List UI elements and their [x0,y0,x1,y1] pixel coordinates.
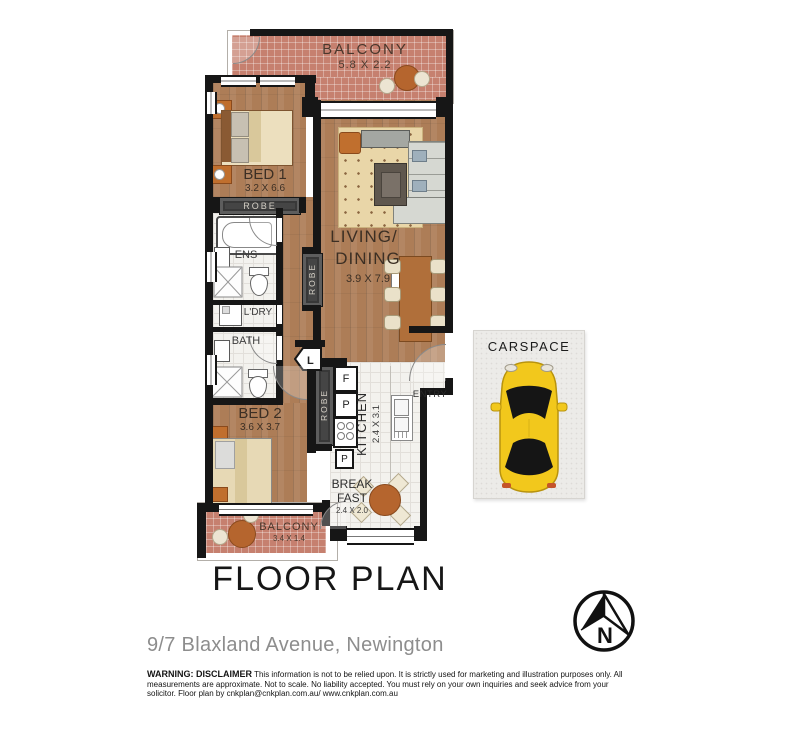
burner [346,432,354,440]
breakfast-label-2: FAST [330,491,374,505]
armchair-icon [339,132,361,154]
compass-n-label: N [597,623,613,648]
door-opening [277,218,282,242]
pantry-label: P [341,454,348,465]
cushion-icon [412,180,427,192]
wall [205,503,219,512]
bath-label: BATH [226,335,266,347]
fridge-label: F [343,373,350,385]
bed1-dims: 3.2 X 6.6 [234,183,296,194]
linen-label: L [307,355,314,367]
disclaimer-heading: WARNING: DISCLAIMER [147,669,252,679]
balcony-chair-icon [212,529,228,545]
wall [197,503,206,558]
bed-pillow [231,112,249,137]
wall [420,388,427,540]
wall [446,29,453,103]
window [205,252,217,282]
sliding-door [318,101,436,119]
cushion-icon [412,150,427,162]
bed-pillow [215,441,235,469]
coffee-table-icon [374,163,407,206]
window [205,92,217,114]
kitchen-dims: 2.4 X 3.1 [371,389,383,459]
lamp-icon [214,169,225,180]
wall [307,358,316,453]
burner [346,422,354,430]
balcony-bottom-label: BALCONY [250,521,328,533]
balcony-top-label: BALCONY [305,41,425,58]
window [260,75,295,87]
bed-headboard [222,111,231,162]
address-text: 9/7 Blaxland Avenue, Newington [147,634,444,657]
window [219,503,313,516]
robe-label: ROBE [307,253,317,305]
north-compass-icon: N [570,588,638,656]
floor-plan-page: F P P ROBE ROBE ROBE [0,0,800,734]
wall [313,305,321,343]
wall [299,197,306,213]
robe-label: ROBE [243,201,277,211]
drainer [394,432,408,438]
living-label-1: LIVING/ [322,227,406,247]
door-opening [277,336,282,360]
robe-label: ROBE [319,365,329,445]
balcony-top-dims: 5.8 X 2.2 [305,59,425,71]
kitchen-label: KITCHEN [354,379,368,469]
window [205,355,217,385]
balcony-chair-icon [414,71,430,87]
bed-fold [235,439,247,503]
living-label-2: DINING [326,249,410,269]
disclaimer-text: WARNING: DISCLAIMER This information is … [147,670,629,699]
bed2-dims: 3.6 X 3.7 [228,422,292,433]
window [221,75,256,87]
wall [205,398,283,405]
washing-machine-dial [222,306,230,314]
pantry-box: P [335,449,354,469]
shower-icon [213,266,243,298]
wall [295,340,325,347]
tv-unit-icon [361,130,410,148]
car-icon [488,359,570,495]
robe-bed1: ROBE [219,197,301,215]
balcony-chair-icon [379,78,395,94]
carspace-label: CARSPACE [474,339,584,354]
wall [213,300,283,305]
bed1-label: BED 1 [234,166,296,183]
wall [250,29,453,36]
bed2-label: BED 2 [228,405,292,422]
wall [313,100,321,253]
breakfast-dims: 2.4 X 2.0 [328,506,376,515]
bed-icon [221,110,293,166]
dining-chair-icon [384,315,401,330]
ens-label: ENS [229,249,263,261]
balcony-bottom-dims: 3.4 X 1.4 [253,534,325,543]
living-dims: 3.9 X 7.9 [326,273,410,285]
entry-label: ENTRY [410,389,450,400]
wall [213,327,283,332]
burner [337,422,345,430]
window [347,528,414,545]
ldry-label: L'DRY [238,307,278,318]
wall [409,326,445,333]
page-title: FLOOR PLAN [175,560,485,599]
pantry-label: P [342,399,349,411]
wall [315,444,332,451]
bed-pillow [231,138,249,163]
dining-chair-icon [384,287,401,302]
coffee-table-top [381,172,401,198]
kitchen-sink-icon [391,395,413,441]
wall [205,400,213,512]
bed-fold [249,111,261,162]
carspace: CARSPACE [473,330,585,499]
breakfast-label-1: BREAK [330,477,374,491]
sink-bowl [394,417,409,432]
wall [445,97,453,333]
sink-bowl [394,399,409,416]
wall [414,526,427,541]
burner [337,432,345,440]
